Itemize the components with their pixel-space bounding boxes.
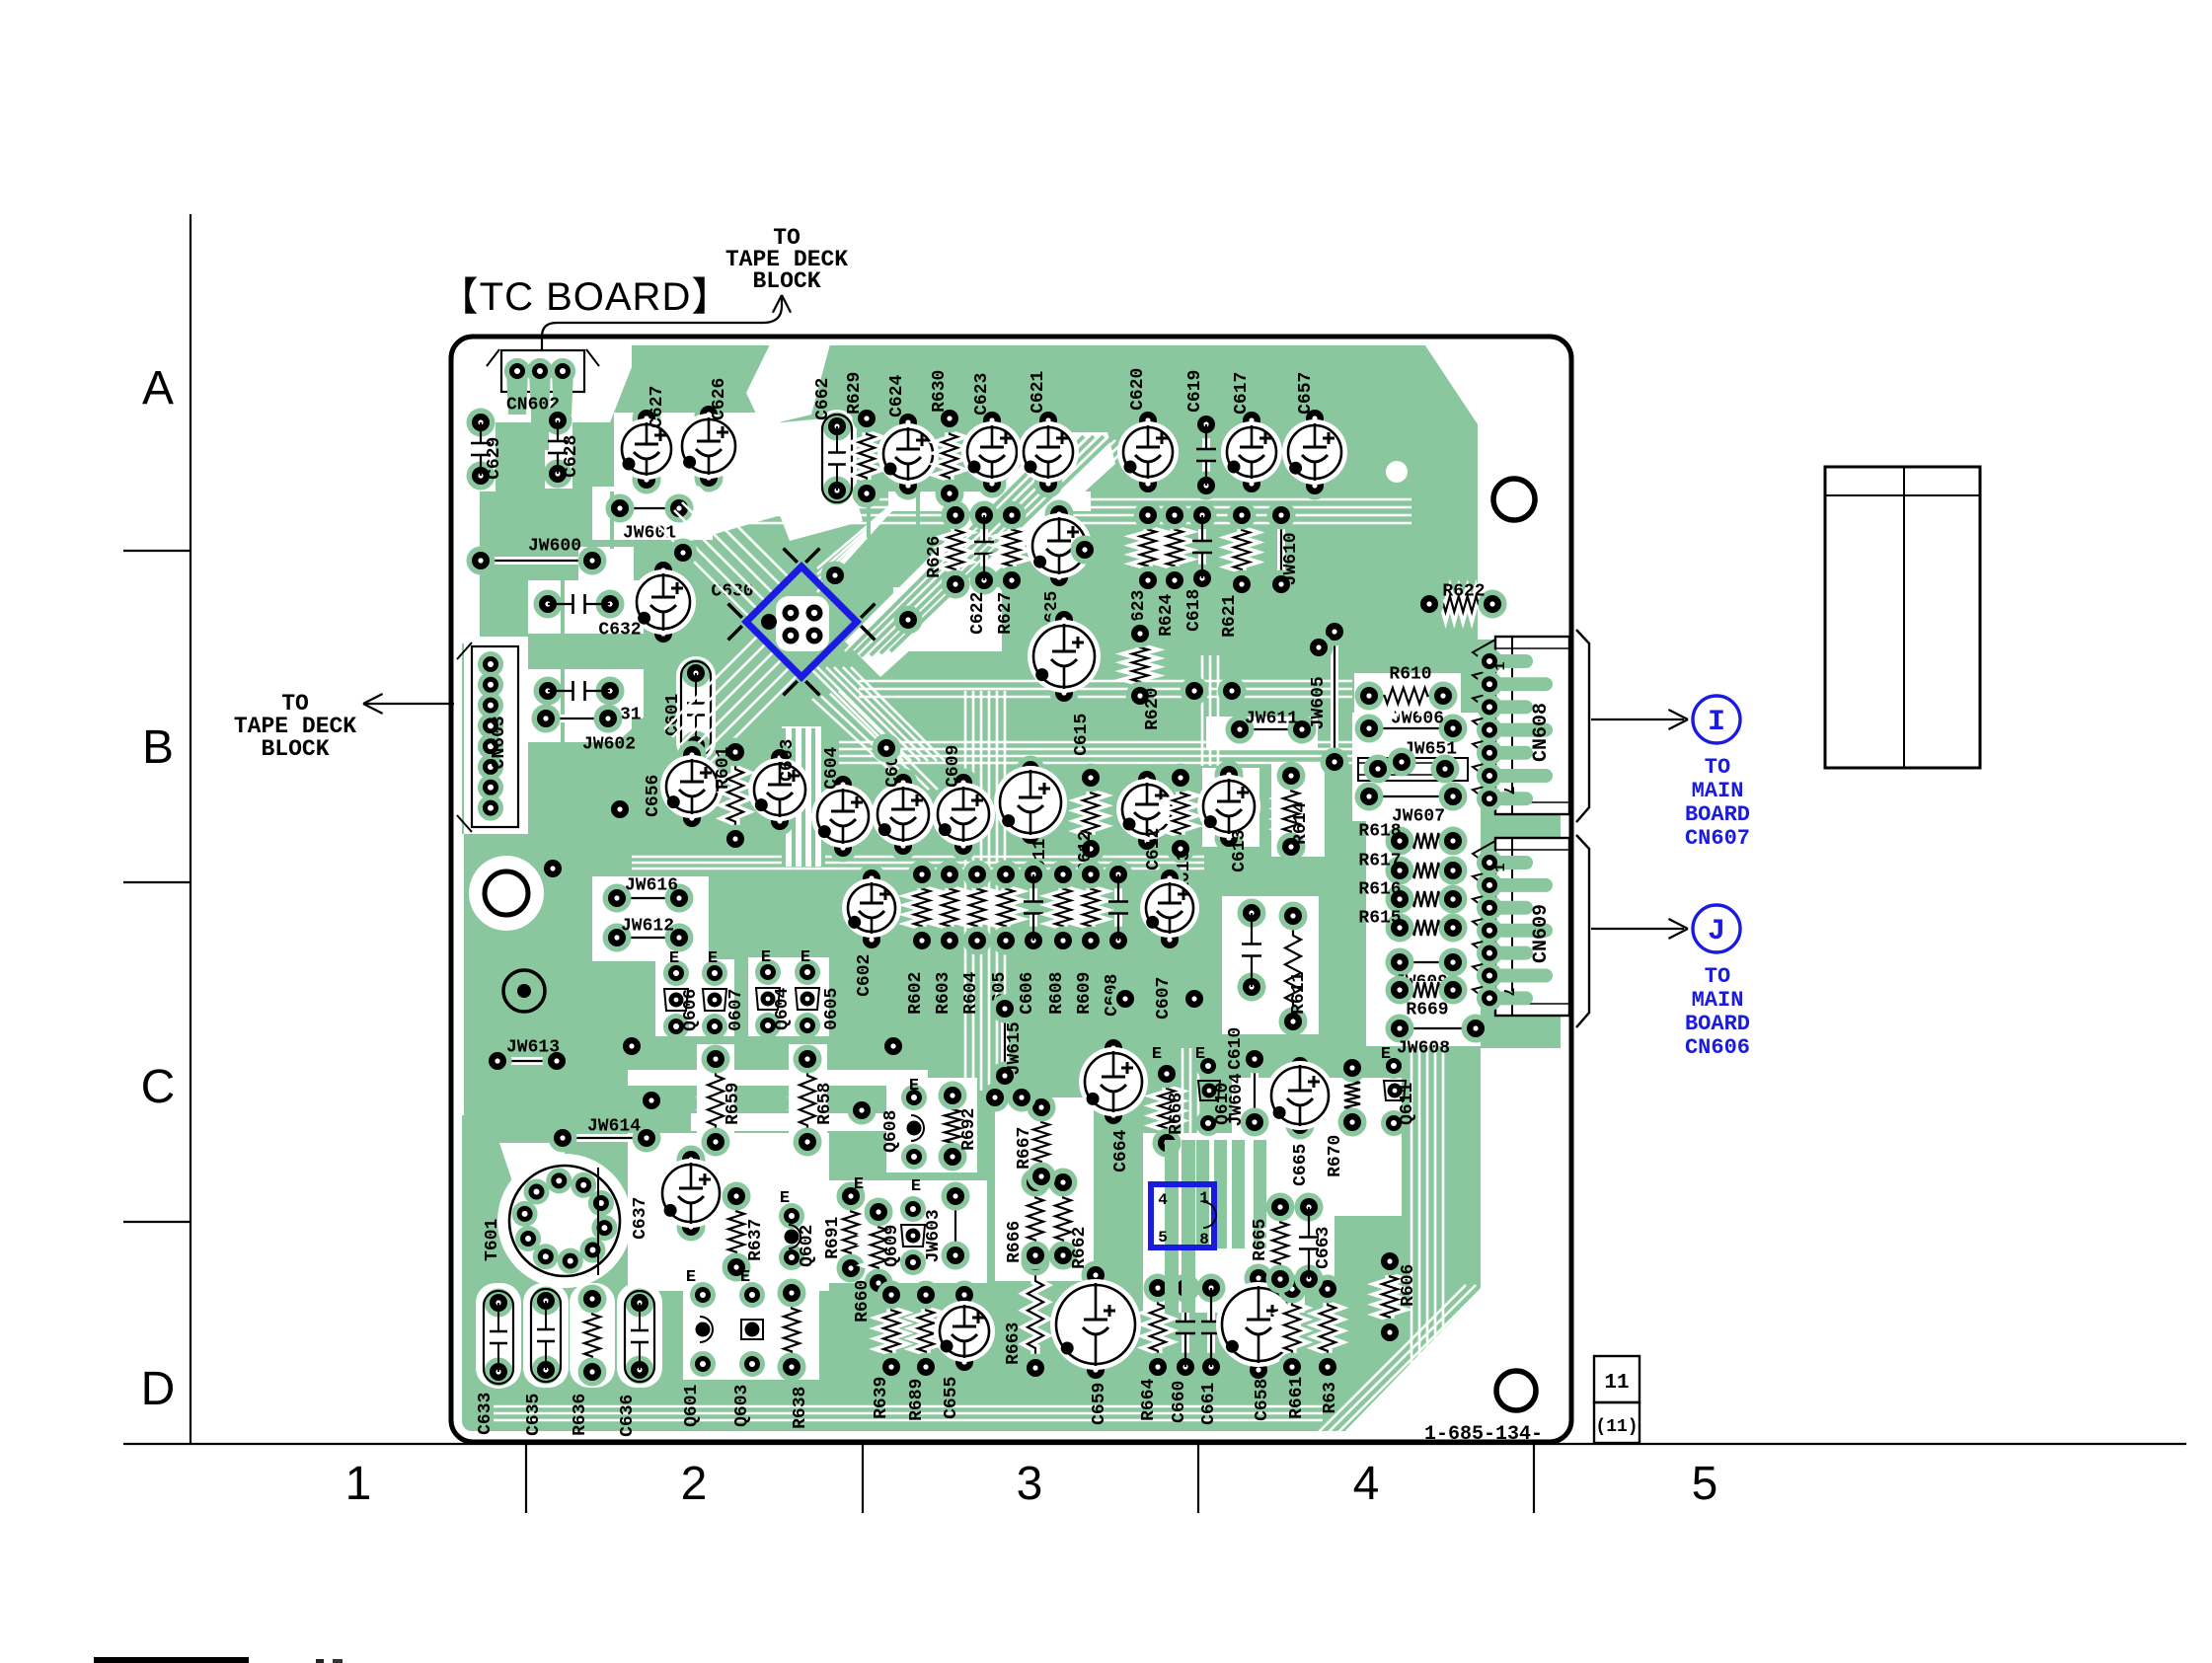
svg-text:C660: C660: [1170, 1381, 1189, 1423]
svg-text:C: C: [141, 1061, 176, 1113]
svg-text:C621: C621: [1029, 371, 1048, 414]
svg-text:JW601: JW601: [623, 523, 676, 543]
svg-text:R636: R636: [571, 1394, 590, 1436]
svg-text:R603: R603: [934, 972, 953, 1015]
svg-text:C663: C663: [1314, 1227, 1334, 1269]
svg-text:R618: R618: [1358, 821, 1401, 841]
svg-text:E: E: [1381, 1045, 1391, 1064]
svg-text:R665: R665: [1251, 1219, 1270, 1261]
svg-text:C618: C618: [1184, 589, 1204, 632]
svg-text:R629: R629: [845, 372, 865, 415]
svg-text:E: E: [669, 949, 679, 968]
svg-text:R621: R621: [1220, 595, 1240, 638]
svg-text:BOARD: BOARD: [1685, 1012, 1750, 1036]
svg-text:R658: R658: [815, 1083, 835, 1125]
svg-text:C629: C629: [485, 437, 504, 480]
svg-text:A: A: [142, 362, 174, 415]
svg-text:7: 7: [1499, 786, 1516, 794]
svg-text:JW615: JW615: [1005, 1021, 1025, 1075]
svg-text:C662: C662: [813, 378, 833, 420]
svg-text:T601: T601: [483, 1219, 502, 1261]
svg-text:R666: R666: [1005, 1221, 1025, 1263]
svg-text:C635: C635: [524, 1394, 544, 1436]
svg-text:C633: C633: [476, 1393, 496, 1435]
svg-text:E: E: [1152, 1045, 1162, 1064]
svg-text:R604: R604: [961, 972, 981, 1015]
svg-text:Q606: Q606: [681, 989, 701, 1031]
svg-text:E: E: [708, 949, 718, 968]
svg-text:JW602: JW602: [582, 734, 636, 754]
svg-text:C665: C665: [1291, 1144, 1311, 1186]
svg-text:R608: R608: [1047, 972, 1067, 1015]
svg-text:R661: R661: [1287, 1377, 1307, 1419]
svg-text:R659: R659: [724, 1083, 743, 1125]
svg-text:R601: R601: [714, 747, 733, 790]
svg-text:R670: R670: [1326, 1135, 1345, 1177]
svg-text:R638: R638: [791, 1387, 810, 1429]
svg-text:C624: C624: [887, 375, 907, 417]
svg-text:Q603: Q603: [732, 1385, 752, 1427]
svg-text:C622: C622: [968, 592, 988, 635]
svg-text:8: 8: [1199, 1231, 1209, 1248]
svg-text:C613: C613: [1230, 830, 1250, 872]
svg-text:C656: C656: [644, 775, 663, 817]
svg-text:C636: C636: [618, 1395, 638, 1437]
svg-text:R660: R660: [853, 1280, 873, 1323]
svg-text:R620: R620: [1143, 688, 1163, 730]
svg-text:C609: C609: [944, 745, 963, 788]
svg-text:R663: R663: [1004, 1323, 1024, 1365]
svg-text:1: 1: [1492, 661, 1509, 670]
svg-text:E: E: [761, 948, 771, 967]
svg-text:11: 11: [1604, 1372, 1629, 1395]
svg-text:CN603: CN603: [490, 716, 509, 769]
svg-text:BLOCK: BLOCK: [261, 736, 329, 762]
svg-text:R63: R63: [1321, 1382, 1340, 1413]
svg-text:R630: R630: [930, 370, 950, 413]
svg-text:I: I: [1708, 706, 1725, 739]
svg-text:R606: R606: [1399, 1264, 1418, 1307]
svg-text:E: E: [686, 1268, 696, 1287]
svg-text:JW608: JW608: [1397, 1038, 1450, 1058]
svg-text:TO: TO: [1705, 755, 1730, 780]
svg-text:C604: C604: [822, 747, 842, 790]
svg-text:MAIN: MAIN: [1692, 779, 1744, 803]
svg-text:R639: R639: [872, 1377, 891, 1419]
svg-text:R637: R637: [746, 1219, 766, 1261]
svg-text:Q601: Q601: [682, 1385, 702, 1427]
svg-text:R664: R664: [1139, 1379, 1159, 1421]
svg-text:C606: C606: [1018, 972, 1037, 1015]
svg-text:7: 7: [1499, 987, 1516, 996]
svg-text:CN606: CN606: [1685, 1035, 1750, 1060]
svg-text:C619: C619: [1185, 370, 1205, 413]
svg-text:E: E: [740, 1268, 750, 1287]
svg-text:TO: TO: [1705, 964, 1730, 989]
svg-text:Q611: Q611: [1398, 1083, 1417, 1125]
svg-text:C637: C637: [631, 1197, 650, 1240]
svg-text:C620: C620: [1128, 368, 1148, 411]
svg-text:4: 4: [1158, 1191, 1168, 1209]
svg-text:4: 4: [1353, 1458, 1380, 1510]
svg-text:Q608: Q608: [881, 1110, 901, 1153]
svg-text:R602: R602: [906, 972, 926, 1015]
svg-text:C661: C661: [1199, 1383, 1219, 1425]
svg-text:R610: R610: [1389, 664, 1431, 684]
svg-text:C632: C632: [598, 620, 641, 640]
svg-text:C655: C655: [942, 1377, 961, 1419]
svg-text:JW600: JW600: [528, 536, 581, 556]
svg-text:0607: 0607: [726, 989, 746, 1031]
svg-text:C664: C664: [1111, 1130, 1131, 1172]
svg-text:C602: C602: [855, 954, 875, 997]
svg-text:BLOCK: BLOCK: [752, 268, 820, 294]
svg-text:C628: C628: [562, 435, 581, 478]
svg-text:JW614: JW614: [587, 1116, 641, 1136]
svg-text:CN608: CN608: [1530, 703, 1553, 762]
svg-text:C623: C623: [972, 373, 992, 416]
svg-text:D: D: [141, 1363, 176, 1415]
svg-text:R611: R611: [1289, 972, 1309, 1015]
svg-text:E: E: [854, 1175, 864, 1194]
svg-text:R692: R692: [959, 1108, 979, 1151]
svg-text:C659: C659: [1090, 1383, 1109, 1425]
svg-text:C658: C658: [1253, 1379, 1272, 1421]
svg-text:MAIN: MAIN: [1692, 988, 1744, 1013]
svg-text:R669: R669: [1406, 1000, 1448, 1020]
svg-text:Q604: Q604: [773, 988, 793, 1030]
svg-text:JW612: JW612: [621, 916, 674, 936]
svg-text:J: J: [1708, 915, 1725, 948]
svg-text:R614: R614: [1291, 802, 1311, 845]
svg-text:R615: R615: [1358, 908, 1401, 928]
svg-text:1: 1: [345, 1458, 372, 1510]
svg-text:1: 1: [1492, 863, 1509, 871]
svg-text:E: E: [1195, 1045, 1205, 1064]
svg-text:2: 2: [681, 1458, 708, 1510]
svg-text:R624: R624: [1157, 594, 1177, 637]
svg-text:JW605: JW605: [1309, 676, 1329, 729]
svg-text:C603: C603: [778, 739, 798, 782]
svg-text:E: E: [801, 948, 810, 967]
svg-text:BOARD: BOARD: [1685, 802, 1750, 827]
svg-text:Q602: Q602: [798, 1225, 817, 1267]
svg-text:C612: C612: [1144, 828, 1164, 870]
svg-text:JW603: JW603: [924, 1209, 944, 1262]
svg-text:0605: 0605: [822, 988, 842, 1030]
svg-text:JW613: JW613: [506, 1037, 560, 1057]
svg-text:R609: R609: [1075, 972, 1095, 1015]
svg-text:C607: C607: [1154, 977, 1174, 1020]
svg-text:R662: R662: [1070, 1227, 1090, 1269]
svg-text:C657: C657: [1296, 372, 1316, 415]
svg-text:C626: C626: [710, 378, 729, 420]
svg-text:JW610: JW610: [1281, 532, 1301, 585]
svg-text:E: E: [909, 1077, 919, 1096]
svg-text:R616: R616: [1358, 879, 1401, 899]
svg-text:1-685-134-: 1-685-134-: [1424, 1423, 1543, 1446]
svg-text:R617: R617: [1358, 851, 1401, 870]
svg-text:JW616: JW616: [625, 875, 678, 895]
svg-text:5: 5: [1692, 1458, 1718, 1510]
svg-text:3: 3: [1017, 1458, 1043, 1510]
svg-text:C627: C627: [648, 386, 667, 428]
svg-text:【TC BOARD】: 【TC BOARD】: [439, 275, 732, 319]
svg-text:Q609: Q609: [882, 1225, 902, 1267]
svg-text:B: B: [142, 721, 174, 774]
svg-text:CN609: CN609: [1530, 904, 1553, 963]
svg-text:R668: R668: [1167, 1093, 1186, 1135]
svg-text:C617: C617: [1232, 372, 1252, 415]
svg-text:R622: R622: [1442, 581, 1485, 601]
svg-text:5: 5: [1158, 1229, 1168, 1247]
svg-text:R689: R689: [907, 1379, 927, 1421]
svg-text:CN607: CN607: [1685, 826, 1750, 851]
svg-text:R691: R691: [823, 1217, 843, 1259]
svg-text:(11): (11): [1595, 1417, 1638, 1437]
svg-text:R627: R627: [996, 592, 1016, 635]
svg-text:E: E: [911, 1177, 921, 1196]
svg-text:E: E: [780, 1189, 790, 1208]
svg-text:R626: R626: [925, 536, 945, 578]
svg-text:JW611: JW611: [1245, 709, 1298, 728]
svg-text:1: 1: [1199, 1189, 1209, 1207]
svg-text:Q610: Q610: [1213, 1083, 1233, 1125]
svg-text:C615: C615: [1072, 714, 1092, 756]
svg-text:R667: R667: [1015, 1127, 1034, 1170]
